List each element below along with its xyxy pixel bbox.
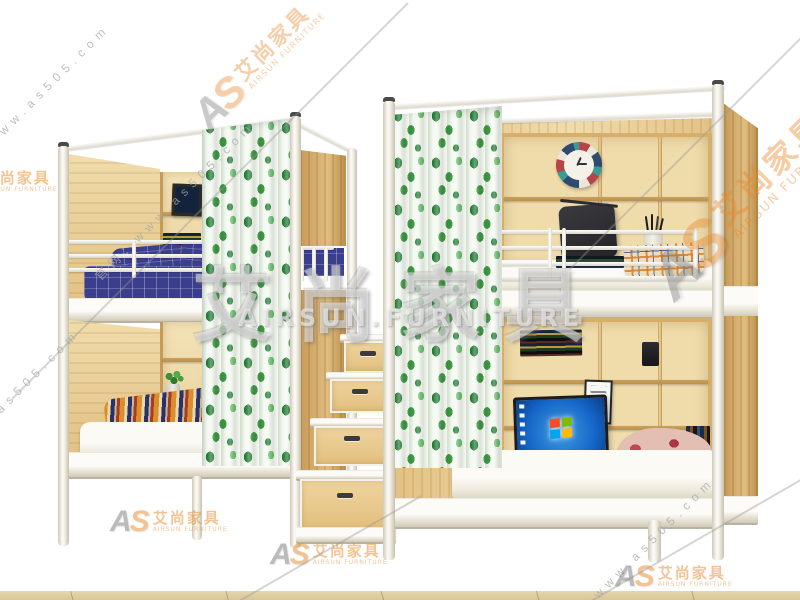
- product-photo: 官网：www.as505.com 官网：www.as505.com 官网：www…: [0, 0, 800, 600]
- wall-clock: [556, 142, 602, 188]
- right-bed-end-panel-upper: [724, 96, 758, 286]
- right-bed-end-beam: [724, 496, 758, 525]
- right-bunk-bed: [0, 0, 800, 600]
- rail-post: [693, 228, 698, 278]
- clock-hand: [578, 163, 587, 165]
- speaker: [642, 342, 659, 366]
- right-bed-curtain: [390, 106, 502, 468]
- right-bed-end-beam: [724, 286, 758, 319]
- floor-strip: [0, 591, 800, 600]
- rail-post: [562, 228, 566, 278]
- right-bed-front-post: [383, 101, 395, 560]
- book-stack: [520, 329, 582, 356]
- windows-logo: [550, 417, 573, 439]
- rail-post: [548, 228, 552, 278]
- desktop-icons: [519, 404, 526, 448]
- right-bed-right-post: [712, 84, 724, 560]
- right-bed-canopy-rail: [389, 85, 725, 109]
- shelf-board: [504, 197, 708, 201]
- right-bed-bottom-beam: [384, 498, 718, 529]
- clock-face: [564, 150, 594, 180]
- right-bed-leg: [648, 520, 661, 562]
- right-bed-end-panel-lower: [724, 316, 758, 496]
